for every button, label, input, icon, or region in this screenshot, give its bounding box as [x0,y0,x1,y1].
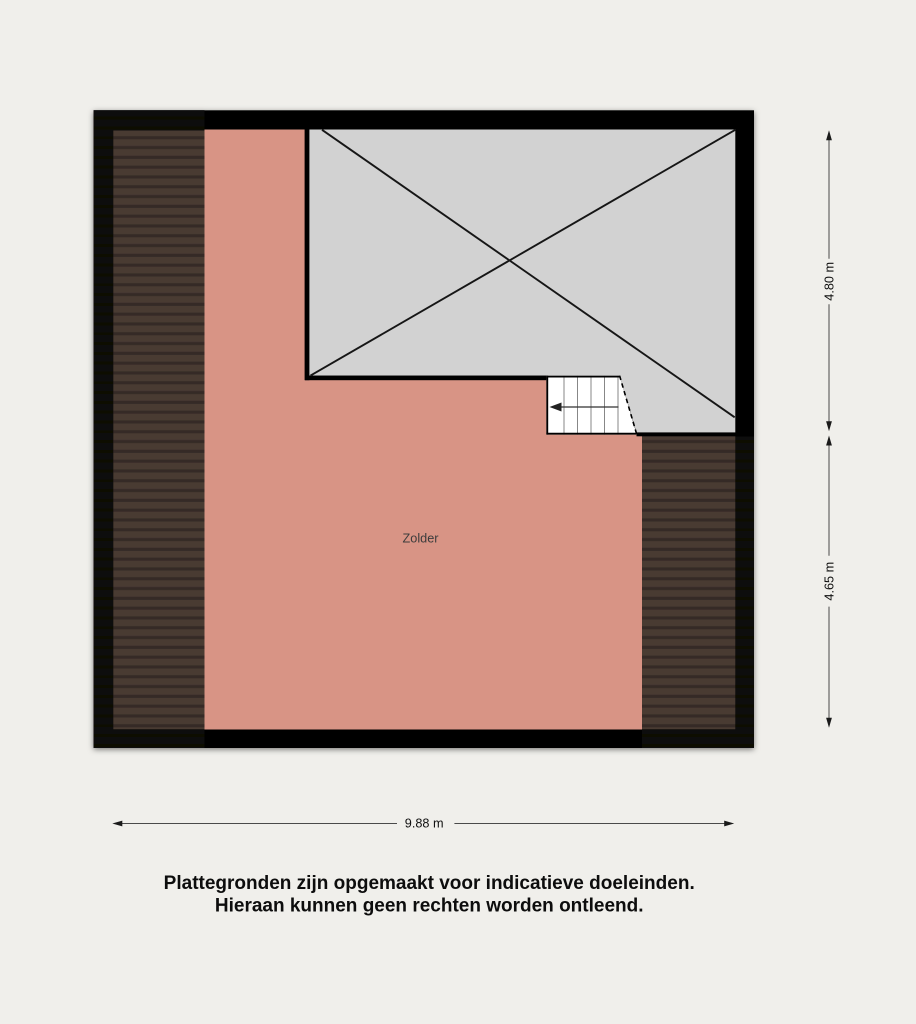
svg-text:4.80 m: 4.80 m [823,262,837,301]
svg-text:Hieraan kunnen geen rechten wo: Hieraan kunnen geen rechten worden ontle… [215,895,644,916]
svg-text:Plattegronden zijn opgemaakt v: Plattegronden zijn opgemaakt voor indica… [164,873,695,894]
svg-text:9.88 m: 9.88 m [405,817,444,831]
svg-text:Zolder: Zolder [403,532,440,546]
svg-text:4.65 m: 4.65 m [823,562,837,601]
